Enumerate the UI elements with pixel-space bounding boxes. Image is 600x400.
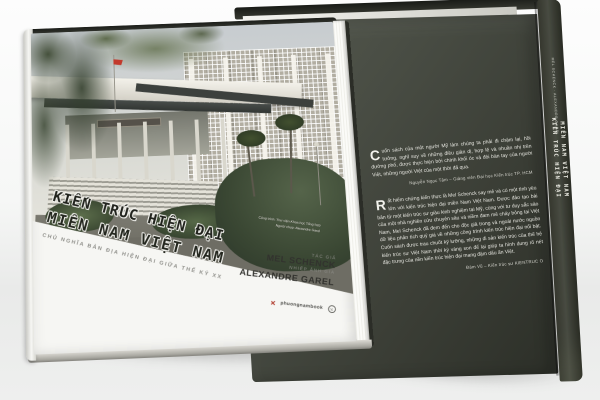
- front-cover: KIẾN TRÚC HIỆN ĐẠI MIỀN NAM VIỆT NAM CHỦ…: [31, 22, 357, 355]
- quote-2-dropcap: R: [375, 200, 386, 212]
- book-product-photo: Cuốn sách của một người Mỹ làm chúng ta …: [0, 0, 600, 400]
- back-cover-quotes: Cuốn sách của một người Mỹ làm chúng ta …: [369, 136, 545, 277]
- publisher-x-logo-icon: [271, 300, 276, 305]
- publisher-name: phuongnambook: [280, 301, 323, 311]
- photo-hanging-branch: [79, 22, 227, 81]
- quote-2: Rất hiếm chứng kiến thực là Mel Schenck …: [375, 186, 544, 268]
- quote-1-dropcap: C: [369, 150, 380, 162]
- publisher-logos: phuongnambook: [270, 298, 336, 313]
- publisher-badge-icon: [328, 305, 337, 314]
- front-book: KIẾN TRÚC HIỆN ĐẠI MIỀN NAM VIỆT NAM CHỦ…: [31, 22, 357, 355]
